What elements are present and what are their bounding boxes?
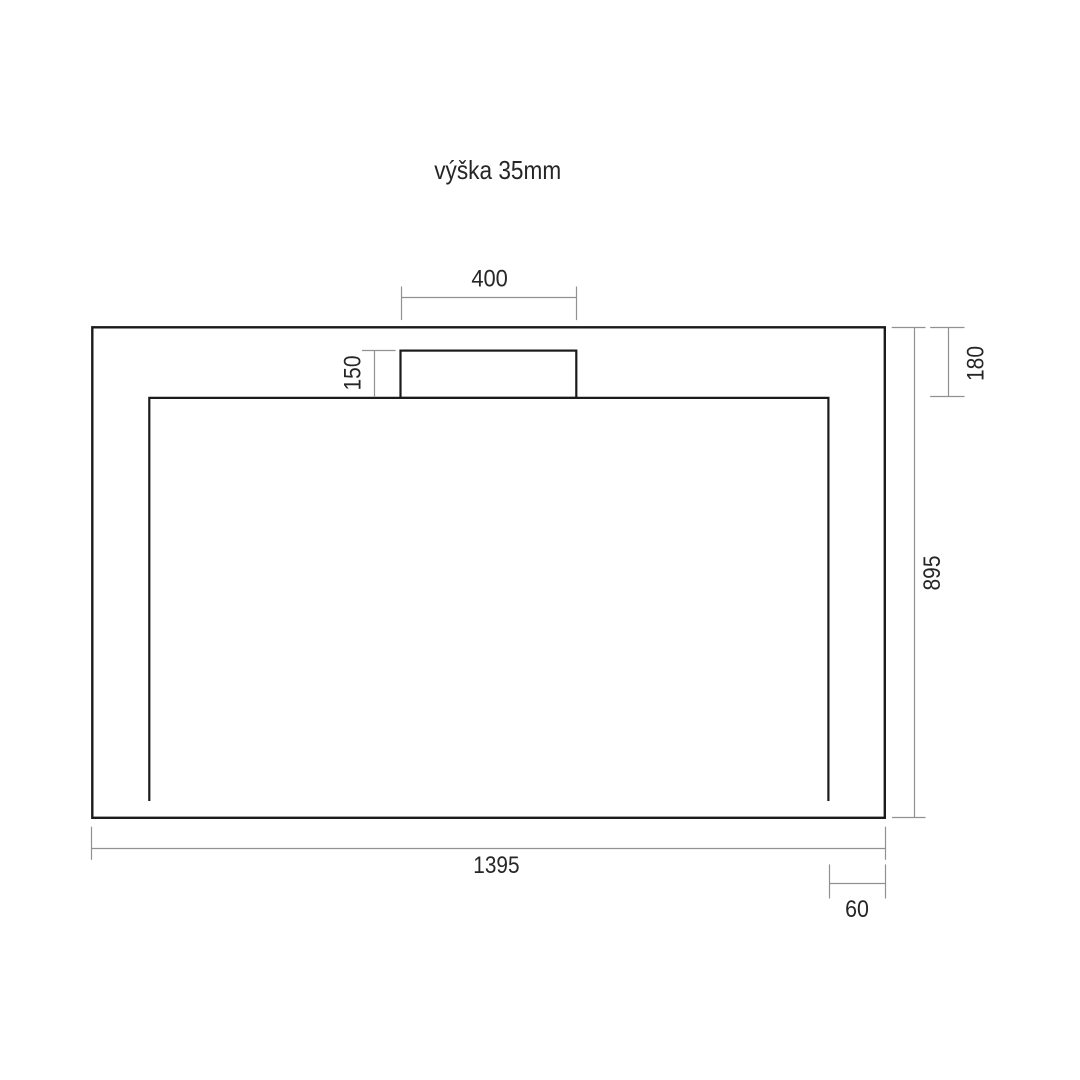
svg-text:895: 895 (919, 556, 946, 591)
svg-text:výška 35mm: výška 35mm (434, 155, 561, 185)
svg-text:1395: 1395 (473, 852, 519, 879)
svg-text:180: 180 (962, 346, 989, 381)
svg-text:60: 60 (845, 896, 869, 923)
svg-text:150: 150 (340, 356, 367, 391)
svg-text:400: 400 (471, 266, 508, 293)
